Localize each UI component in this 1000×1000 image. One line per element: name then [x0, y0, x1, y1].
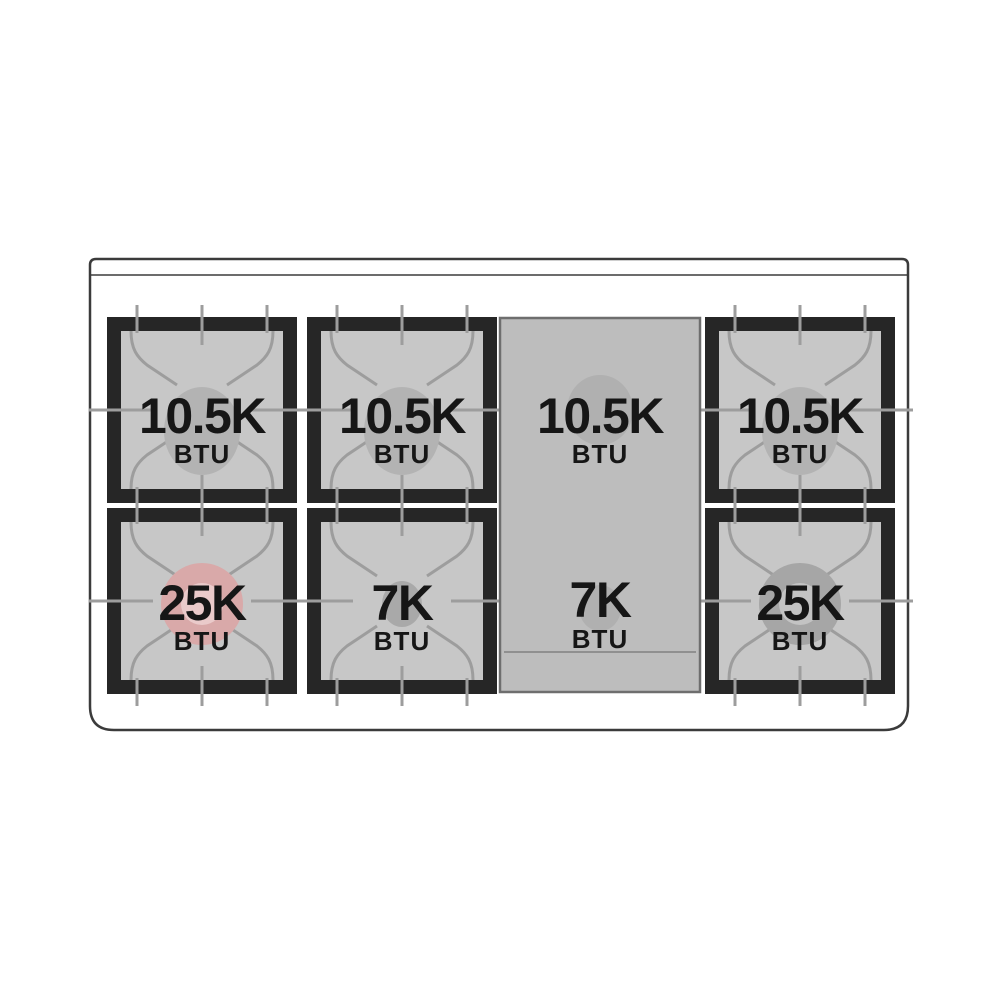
burner-unit-label: BTU	[572, 439, 628, 469]
burner-unit-label: BTU	[772, 439, 828, 469]
burner-rating-label: 25K	[756, 575, 845, 631]
burner-rating-label: 25K	[158, 575, 247, 631]
burner-unit-label: BTU	[174, 439, 230, 469]
burner-grate-bottom-right: 25K BTU	[687, 496, 913, 706]
burner-rating-label: 10.5K	[737, 388, 864, 444]
burner-unit-label: BTU	[772, 626, 828, 656]
burner-unit-label: BTU	[572, 624, 628, 654]
burner-rating-label: 7K	[372, 575, 434, 631]
burner-unit-label: BTU	[174, 626, 230, 656]
burner-grate-top-center: 10.5K BTU	[289, 305, 515, 515]
griddle-plate: 10.5K BTU 7K BTU	[500, 318, 700, 692]
burner-grate-bottom-left: 25K BTU	[89, 496, 315, 706]
burner-unit-label: BTU	[374, 626, 430, 656]
cooktop-diagram-page: 10.5K BTU 10.5K BTU 10.5K BTU 25K BTU	[0, 0, 1000, 1000]
cooktop-diagram: 10.5K BTU 10.5K BTU 10.5K BTU 25K BTU	[0, 0, 1000, 1000]
burner-grate-top-right: 10.5K BTU	[687, 305, 913, 515]
burner-unit-label: BTU	[374, 439, 430, 469]
burner-grate-bottom-center: 7K BTU	[289, 496, 515, 706]
burner-rating-label: 10.5K	[339, 388, 466, 444]
burner-rating-label: 7K	[570, 572, 632, 628]
burner-rating-label: 10.5K	[139, 388, 266, 444]
burner-grate-top-left: 10.5K BTU	[89, 305, 315, 515]
burner-rating-label: 10.5K	[537, 388, 664, 444]
